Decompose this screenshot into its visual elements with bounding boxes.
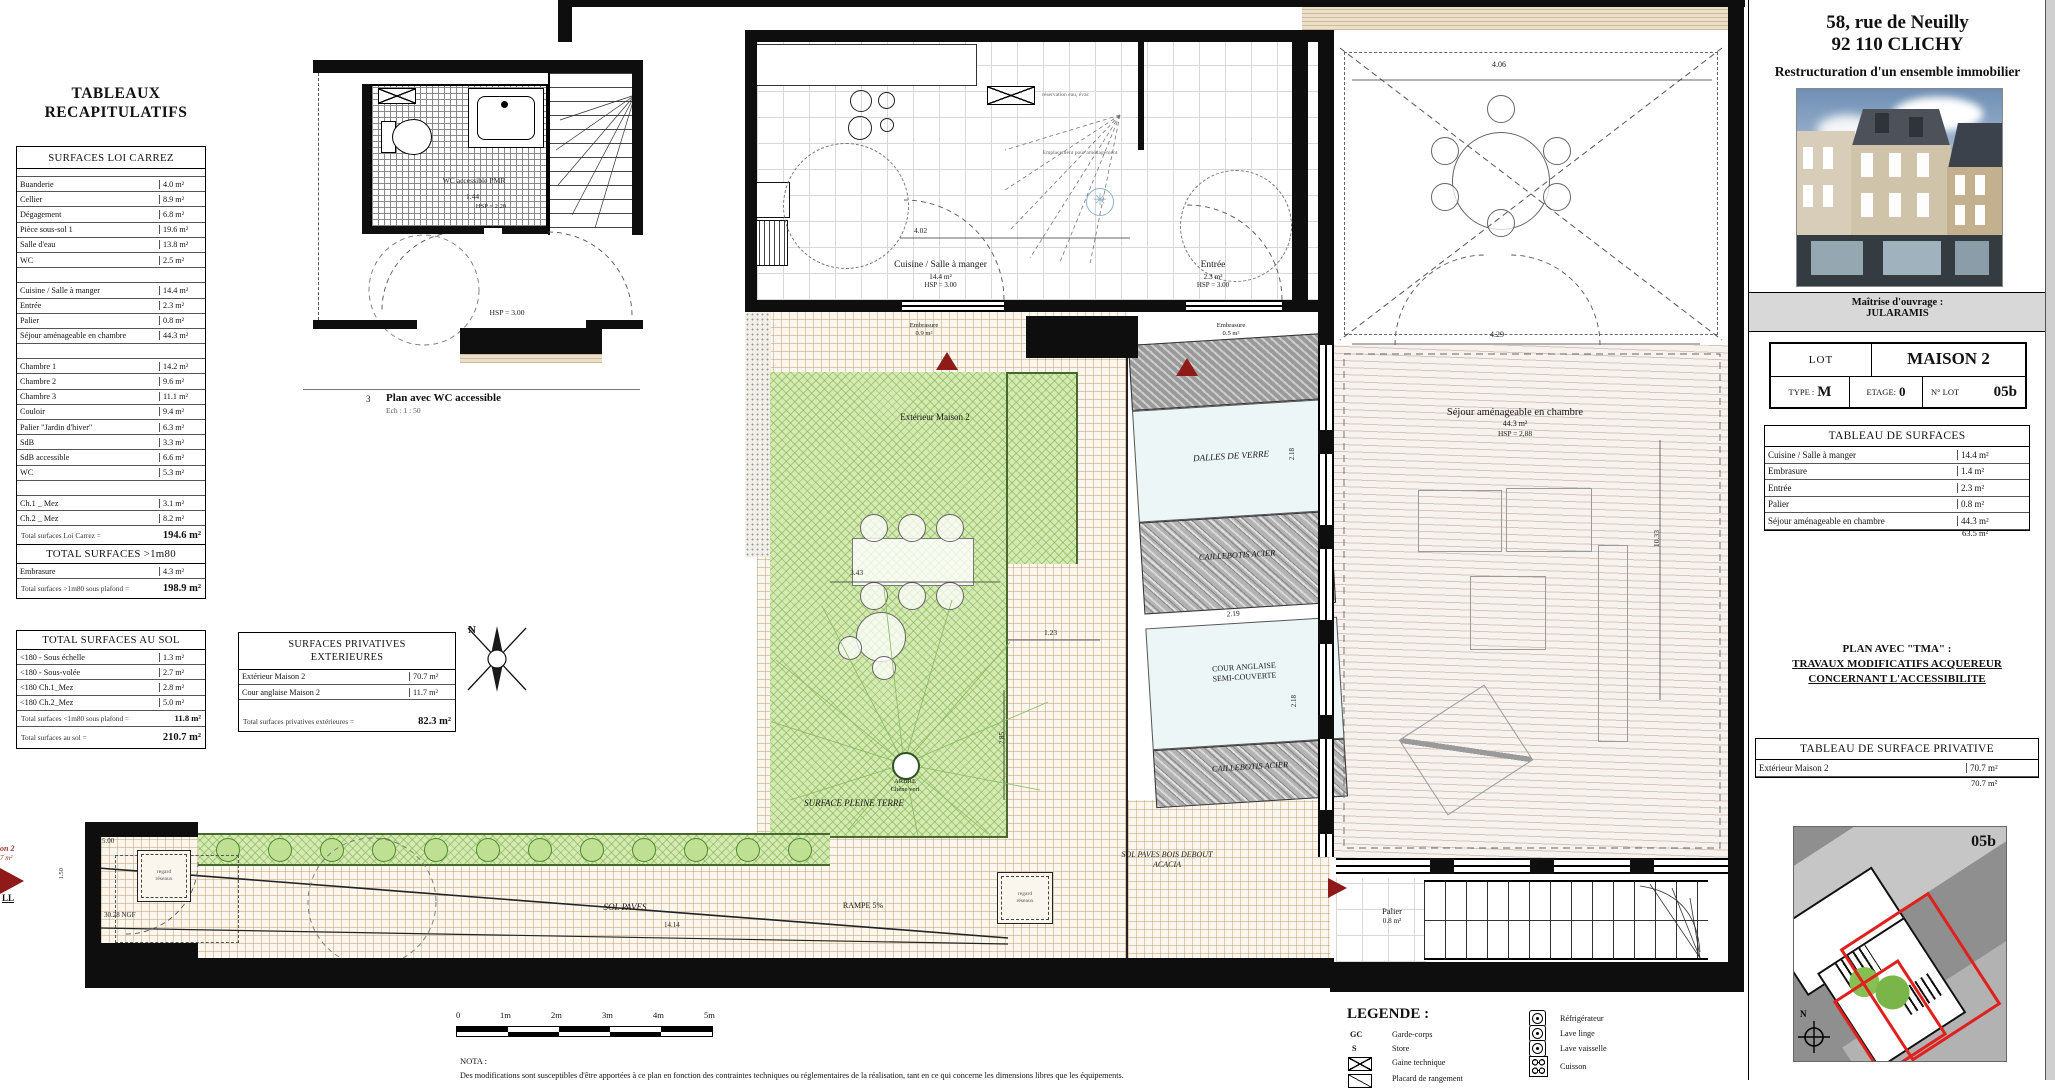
title-panel: 58, rue de Neuilly 92 110 CLICHY Restruc…: [1748, 0, 2046, 1080]
ngf-label: 30.28 NGF: [104, 911, 136, 919]
sol-paves-bois-label: SOL PAVES BOIS DEBOUT ACACIA: [1092, 850, 1242, 870]
table-row: Entrée 2.3 m²: [17, 299, 205, 314]
placard-icon: [1348, 1074, 1372, 1088]
kitchen-left-wall: [745, 30, 757, 312]
chair: [898, 514, 926, 542]
tableau-surface-privative: TABLEAU DE SURFACE PRIVATIVE Extérieur M…: [1755, 738, 2039, 778]
mullion: [1318, 620, 1334, 644]
table-row: Entrée 2.3 m²: [1765, 480, 2029, 497]
edge-fragment: LL: [2, 893, 14, 903]
table-row: [17, 268, 205, 283]
kitchen-bottom-wall-a: [745, 300, 905, 312]
edge-fragment: on 2: [0, 844, 14, 853]
table-row: <180 Ch.2_Mez 5.0 m²: [17, 696, 205, 711]
detail-number: 3: [366, 394, 371, 404]
top-boundary-wall: [558, 0, 1745, 7]
corridor-bottom-wall: [85, 958, 1334, 988]
stair-rail: [1424, 920, 1708, 921]
table-total-surfaces-1m80: TOTAL SURFACES >1m80 Embrasure 4.3 m² To…: [16, 544, 206, 599]
table-row: Embrasure 1.4 m²: [1765, 464, 2029, 481]
door-marker-icon: [1176, 358, 1198, 376]
door-marker-icon: [1328, 878, 1347, 898]
kitchen-counter: [757, 44, 977, 86]
gravel-strip: [745, 312, 771, 557]
table-total-surfaces-au-sol: TOTAL SURFACES AU SOL <180 - Sous échell…: [16, 630, 206, 749]
mullion: [1318, 715, 1334, 739]
lot-label: LOT: [1771, 344, 1872, 376]
table-row: Buanderie 4.0 m²: [17, 177, 205, 192]
scale-bar: 0 1m 2m 3m 4m 5m: [456, 1010, 736, 1044]
table-row: Séjour aménageable en chambre 44.3 m²: [1765, 513, 2029, 530]
cuisson-icon: [1529, 1056, 1548, 1077]
entrance-arrow-icon: [0, 868, 24, 894]
kitchen-bottom-wall-b: [1004, 300, 1186, 312]
table-row: Chambre 2 9.6 m²: [17, 374, 205, 389]
etage-value: 0: [1899, 384, 1906, 400]
table-subtotal-row: Total surfaces <1m80 sous plafond = 11.8…: [17, 711, 205, 727]
legend-key-gc: GC: [1350, 1030, 1362, 1039]
table-surfaces-privatives-exterieures: SURFACES PRIVATIVES EXTERIEURES Extérieu…: [238, 632, 456, 732]
tma-note: PLAN AVEC "TMA" : TRAVAUX MODIFICATIFS A…: [1764, 642, 2030, 687]
table-row: Cuisine / Salle à manger 14.4 m²: [1765, 447, 2029, 464]
table-rows: Extérieur Maison 2 70.7 m²: [1756, 760, 2038, 777]
table-rows: Embrasure 4.3 m²: [17, 564, 205, 579]
legend-label-refrigerateur: Réfrigérateur: [1560, 1014, 1604, 1023]
wc-room-bottom-wall: [362, 226, 484, 234]
sheet-title: TABLEAUX RECAPITULATIFS: [18, 84, 214, 123]
detail-scale: Ech : 1 : 50: [386, 406, 421, 415]
cooktop-burner-icon: [850, 90, 872, 112]
gaine-technique-icon: [378, 88, 416, 104]
table-surfaces-loi-carrez: SURFACES LOI CARREZ Buanderie 4.0 m² Cel…: [16, 146, 206, 546]
chair: [936, 582, 964, 610]
table-row: Extérieur Maison 2 70.7 m²: [1756, 760, 2038, 777]
dim-label: 5.00: [102, 837, 114, 845]
chair: [898, 582, 926, 610]
annotation: réservation eau, évac: [1042, 92, 1132, 99]
table-row: Ch.1 _ Mez 3.1 m²: [17, 496, 205, 511]
table-row: Cour anglaise Maison 2 11.7 m²: [239, 685, 455, 700]
scale-tick: 3m: [602, 1010, 613, 1020]
sejour-west-glazing: [1318, 345, 1334, 857]
wc-hsp-label: HSP = 3.00: [452, 308, 562, 317]
legend-label-garde-corps: Garde-corps: [1392, 1030, 1432, 1039]
table-row: <180 Ch.1_Mez 2.8 m²: [17, 680, 205, 695]
scale-bar-segments: [456, 1026, 713, 1037]
toilet-bowl-icon: [392, 119, 432, 155]
chair: [860, 582, 888, 610]
table-rows: <180 - Sous échelle 1.3 m² <180 - Sous-v…: [17, 650, 205, 711]
snowflake-icon: ✳: [1086, 188, 1114, 216]
lave-vaisselle-icon: [1529, 1040, 1546, 1057]
nlot-label: N° LOT: [1931, 387, 1959, 397]
table-row: Palier 0.8 m²: [17, 314, 205, 329]
chair: [1487, 209, 1515, 237]
cour-anglaise-strip: DALLES DE VERRE CAILLEBOTIS ACIER 2.19 C…: [1128, 333, 1348, 814]
round-garden-table: [856, 612, 906, 662]
nlot-value: 05b: [1994, 384, 2017, 401]
table-row: Dégagement 6.8 m²: [17, 207, 205, 222]
kitchen-bottom-wall-c: [1282, 300, 1334, 312]
wc-room-left-wall: [362, 84, 370, 234]
annotation: Emplacement pour aménagement: [1038, 150, 1122, 157]
table-spacer: [17, 169, 205, 177]
dim-label: 1.50: [58, 868, 65, 880]
table-rows: Buanderie 4.0 m² Cellier 8.9 m² Dégageme…: [17, 177, 205, 526]
entree-right-wall: [1292, 42, 1308, 312]
staircase: [1424, 880, 1708, 960]
caption-divider: [303, 389, 640, 390]
legend-label-store: Store: [1392, 1044, 1409, 1053]
tableau-de-surfaces: TABLEAU DE SURFACES Cuisine / Salle à ma…: [1764, 425, 2030, 531]
table-row: Chambre 1 14.2 m²: [17, 359, 205, 374]
sejour-label: Séjour aménageable en chambre 44.3 m² HS…: [1390, 406, 1640, 438]
entree-label: Entrée 2.3 m² HSP = 3.00: [1158, 260, 1268, 290]
project-address-line2: 92 110 CLICHY: [1749, 34, 2046, 56]
site-north-label: N: [1800, 1009, 1807, 1019]
cooktop-burner-icon: [880, 118, 894, 132]
hedge-bushes: [198, 833, 830, 866]
stair-partition: [1138, 42, 1144, 150]
gaine-technique-icon: [987, 86, 1035, 105]
entree-window: [1186, 300, 1282, 312]
table-row: SdB accessible 6.6 m²: [17, 450, 205, 465]
building-photo: [1796, 88, 2003, 287]
drain-icon: [501, 101, 508, 108]
table-row: Extérieur Maison 2 70.7 m²: [239, 670, 455, 685]
scale-tick: 1m: [500, 1010, 511, 1020]
legend-label-cuisson: Cuisson: [1560, 1062, 1586, 1071]
chair: [1543, 183, 1571, 211]
cooktop-burner-icon: [878, 92, 895, 109]
chair: [1543, 137, 1571, 165]
table-rows: Cuisine / Salle à manger 14.4 m² Embrasu…: [1765, 447, 2029, 530]
palier-label: Palier 0.8 m²: [1360, 906, 1424, 926]
table-total-row: Total surfaces au sol = 210.7 m²: [17, 727, 205, 748]
chair: [1431, 183, 1459, 211]
sheet-edge: [2045, 0, 2055, 1080]
table-row: Ch.2 _ Mez 8.2 m²: [17, 511, 205, 526]
table-title: TOTAL SURFACES AU SOL: [17, 631, 205, 650]
mullion: [1318, 525, 1334, 549]
dim-label: 4.06: [1492, 60, 1506, 69]
embrasure-label: Embrasure 0.5 m²: [1188, 322, 1274, 338]
table-row: Palier "Jardin d'hiver" 6.3 m²: [17, 420, 205, 435]
mullion: [1318, 810, 1334, 834]
table-row: Pièce sous-sol 1 19.6 m²: [17, 223, 205, 238]
table-title: TOTAL SURFACES >1m80: [17, 545, 205, 564]
project-subtitle: Restructuration d'un ensemble immobilier: [1749, 64, 2046, 80]
canopy-hatch: [1128, 333, 1324, 411]
chair: [860, 514, 888, 542]
top-left-wall-stub: [558, 0, 572, 42]
dim-label: 3.43: [850, 568, 863, 577]
detail-caption: Plan avec WC accessible: [386, 392, 501, 404]
chair: [936, 514, 964, 542]
furniture-table: [1418, 490, 1502, 552]
dim-label: 1.23: [1044, 628, 1057, 637]
table-row: Embrasure 4.3 m²: [17, 564, 205, 579]
scale-tick: 5m: [704, 1010, 715, 1020]
dim-label: 2.18: [1290, 695, 1298, 707]
lot-name: MAISON 2: [1872, 344, 2025, 376]
sheet-title-line2: RECAPITULATIFS: [18, 103, 214, 122]
chair: [872, 656, 896, 680]
dim-label: 2.19: [1226, 609, 1240, 619]
moa-band: Maîtrise d'ouvrage : JULARAMIS: [1749, 292, 2046, 332]
mullion: [1430, 858, 1454, 874]
kitchen-label: Cuisine / Salle à manger 14.4 m² HSP = 3…: [858, 260, 1023, 290]
door-marker-icon: [936, 352, 958, 370]
legend-label-gaine: Gaine technique: [1392, 1058, 1445, 1067]
site-lot-label: 05b: [1971, 833, 1996, 851]
sheet-title-line1: TABLEAUX: [18, 84, 214, 103]
wc-plan-planter: [460, 328, 602, 354]
shower-tray: [468, 88, 544, 148]
dim-label: 14.14: [664, 921, 680, 929]
furniture-table: [1470, 576, 1546, 650]
sol-paves-label: SOL PAVES: [585, 902, 665, 913]
table-row: Chambre 3 11.1 m²: [17, 390, 205, 405]
embrasure-label: Embrasure 0.9 m²: [878, 322, 970, 338]
table-row: WC 2.5 m²: [17, 253, 205, 268]
table-row: Cellier 8.9 m²: [17, 192, 205, 207]
table-row: Séjour aménageable en chambre 44.3 m²: [17, 329, 205, 344]
table-row: Couloir 9.4 m²: [17, 405, 205, 420]
dim-label: 1.44: [466, 192, 479, 201]
table-row: SdB 3.3 m²: [17, 435, 205, 450]
legend-title: LEGENDE :: [1347, 1006, 1429, 1023]
kitchen-window: [902, 300, 1004, 312]
regard-box: regardréseaux: [997, 872, 1053, 924]
dim-label: 4.29: [1490, 330, 1504, 339]
etage-label: ETAGE:: [1866, 387, 1896, 397]
nota-text: Des modifications sont susceptibles d'êt…: [460, 1071, 1650, 1080]
neighbour-strip: [1302, 7, 1734, 30]
chair: [838, 636, 862, 660]
wc-room-bottom-wall-2: [502, 226, 548, 234]
table-row: [17, 344, 205, 359]
table-rows: Extérieur Maison 2 70.7 m² Cour anglaise…: [239, 670, 455, 700]
table-total-row: Total surfaces Loi Carrez = 194.6 m²: [17, 526, 205, 545]
cooktop-burner-icon: [848, 116, 872, 140]
table-row: <180 - Sous-volée 2.7 m²: [17, 665, 205, 680]
building-right-wall: [1728, 0, 1744, 992]
exterieur-maison2-label: Extérieur Maison 2: [845, 412, 1025, 423]
wc-plan-right-wall: [632, 60, 643, 235]
table-total-row: Total surfaces privatives extérieures = …: [239, 712, 455, 731]
legend-label-placard: Placard de rangement: [1392, 1074, 1463, 1083]
dim-label: 2.85: [998, 732, 1006, 744]
chair: [1431, 137, 1459, 165]
tree-trunk-icon: [892, 752, 920, 780]
legend-label-lave-vaisselle: Lave vaisselle: [1560, 1044, 1607, 1053]
scale-tick: 2m: [551, 1010, 562, 1020]
garden-table: [852, 538, 974, 586]
rampe-label: RAMPE 5%: [828, 901, 898, 911]
dim-label: 2.18: [1288, 448, 1296, 460]
corridor-left-wall: [85, 822, 101, 958]
planter-box: [1026, 316, 1138, 358]
legend-label-lave-linge: Lave linge: [1560, 1029, 1595, 1038]
table-row: [17, 481, 205, 496]
north-label: N: [468, 624, 476, 636]
wc-plan-stair: [548, 73, 634, 235]
mullion: [1530, 858, 1554, 874]
wc-room-label: WC accessible PMR: [408, 176, 540, 185]
table-row: Palier 0.8 m²: [1765, 497, 2029, 514]
wc-plan-paving-strip: [460, 354, 602, 363]
furniture-shelf: [1598, 545, 1628, 742]
garden-lower: [770, 372, 1008, 838]
wc-plan-property-line: [318, 73, 319, 325]
entrance-bottom-wall: [88, 943, 198, 958]
acacia-paving: [1128, 800, 1330, 962]
lot-table: LOT MAISON 2 TYPE : M ETAGE: 0 N° LOT 05…: [1769, 342, 2027, 409]
furniture-table: [1506, 488, 1592, 552]
wc-hsp-low-label: HSP = 2.20: [446, 203, 536, 211]
chair: [1487, 95, 1515, 123]
turning-circle: [783, 143, 909, 269]
nota-label: NOTA :: [460, 1056, 487, 1066]
privative-total: 70.7 m²: [1755, 778, 2039, 788]
table-total-row: Total surfaces >1m80 sous plafond = 198.…: [17, 579, 205, 598]
dim-label: 4.02: [914, 226, 927, 235]
regard-box: regardréseaux: [137, 850, 191, 902]
project-address-line1: 58, rue de Neuilly: [1749, 12, 2046, 34]
wc-plan-lower-wall: [313, 320, 417, 329]
edge-fragment: 7 m²: [0, 854, 12, 862]
dim-label: 10.33: [1652, 530, 1661, 547]
table-spacer: [239, 700, 455, 712]
legend-key-s: S: [1352, 1044, 1357, 1053]
table-row: WC 5.3 m²: [17, 466, 205, 481]
table-title: SURFACES LOI CARREZ: [17, 147, 205, 169]
gaine-technique-icon: [1348, 1057, 1372, 1071]
type-label: TYPE :: [1789, 387, 1815, 397]
mullion: [1630, 858, 1654, 874]
mullion: [1318, 430, 1334, 454]
table-row: <180 - Sous échelle 1.3 m²: [17, 650, 205, 665]
sejour-west-wall-upper: [1318, 30, 1334, 345]
strip-edge-line: [1126, 345, 1128, 963]
entrance-top-wall: [88, 822, 198, 837]
floor-plan-sheet: { "header": {"l1": "TABLEAUX", "l2": "RE…: [0, 0, 2055, 1080]
tree-label: ARBRE Chêne vert: [870, 778, 940, 794]
wc-plan-top-wall: [313, 60, 643, 73]
table-row: Salle d'eau 13.8 m²: [17, 238, 205, 253]
site-compass-icon: [1796, 1019, 1832, 1055]
surface-pleine-terre-label: SURFACE PLEINE TERRE: [784, 798, 924, 809]
type-value: M: [1817, 384, 1831, 401]
table-title: SURFACES PRIVATIVES EXTERIEURES: [239, 633, 455, 670]
scale-tick: 4m: [653, 1010, 664, 1020]
scale-tick: 0: [456, 1010, 460, 1020]
kitchen-top-wall: [745, 30, 1334, 42]
table-row: Cuisine / Salle à manger 14.4 m²: [17, 283, 205, 298]
site-plan: 05b N: [1793, 826, 2007, 1062]
bottom-right-wall: [1330, 962, 1742, 992]
